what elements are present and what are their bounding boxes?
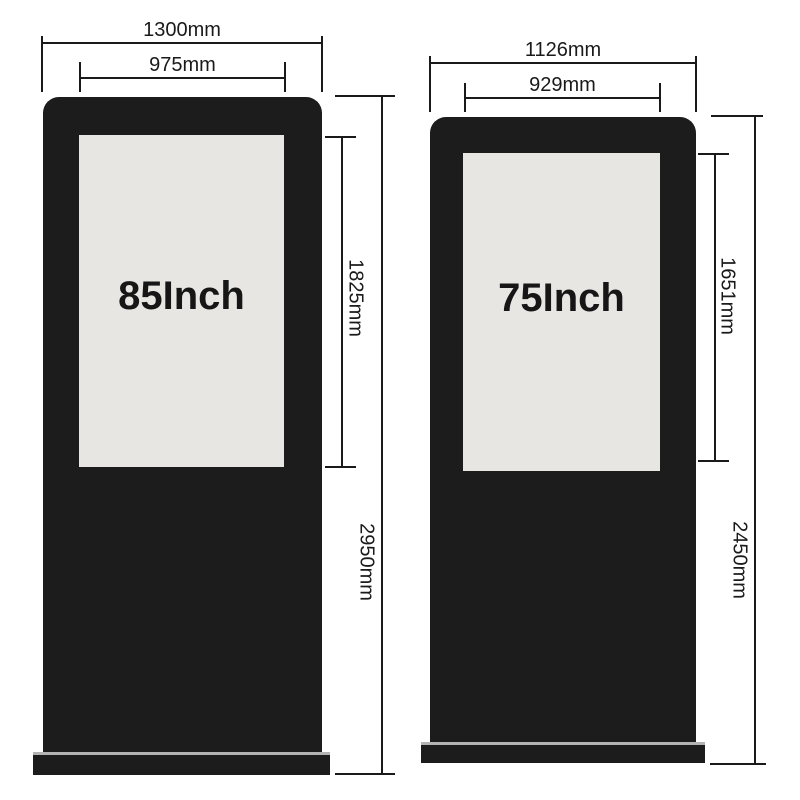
- kiosk-85-screen-height-tick-bottom: [325, 466, 356, 468]
- kiosk-75-screen-size-label: 75Inch: [498, 276, 625, 321]
- kiosk-85-base: [33, 752, 330, 775]
- kiosk-85-screen-width-label: 975mm: [80, 55, 285, 76]
- kiosk-85-total-height-tick-bottom: [335, 773, 395, 775]
- kiosk-75-screen-width-tick-right: [659, 83, 661, 112]
- kiosk-85-outer-width-tick-left: [41, 36, 43, 92]
- kiosk-75-outer-width-tick-left: [429, 56, 431, 112]
- kiosk-85-screen-size-label: 85Inch: [118, 274, 245, 319]
- kiosk-75-screen-width-dim-line: [465, 97, 660, 99]
- kiosk-85-screen-width-tick-right: [284, 62, 286, 92]
- kiosk-85-total-height-label: 2950mm: [355, 523, 378, 601]
- kiosk-75-total-height-tick-top: [711, 115, 763, 117]
- kiosk-75-screen-height-tick-top: [698, 153, 729, 155]
- kiosk-75-total-height-label: 2450mm: [728, 521, 751, 599]
- kiosk-85-screen: 85Inch: [79, 135, 284, 467]
- kiosk-75-outer-width-dim-line: [430, 62, 696, 64]
- kiosk-85-screen-height-label: 1825mm: [344, 259, 367, 337]
- kiosk-85-outer-width-dim-line: [42, 42, 322, 44]
- kiosk-75-total-height-tick-bottom: [710, 763, 766, 765]
- kiosk-75-screen-height-label: 1651mm: [716, 257, 739, 335]
- kiosk-85-total-height-tick-top: [335, 95, 395, 97]
- kiosk-75-total-height-dim-line: [754, 116, 756, 765]
- kiosk-75-base: [421, 742, 705, 763]
- kiosk-75-screen-width-label: 929mm: [465, 75, 660, 96]
- kiosk-dimension-diagram: 85Inch 1300mm 975mm 1825mm 2950mm 75Inch…: [0, 0, 800, 800]
- kiosk-85-screen-width-dim-line: [80, 77, 285, 79]
- kiosk-75-outer-width-tick-right: [695, 56, 697, 112]
- kiosk-75-screen-width-tick-left: [464, 83, 466, 112]
- kiosk-85-total-height-dim-line: [381, 96, 383, 775]
- kiosk-75-screen-height-tick-bottom: [698, 460, 729, 462]
- kiosk-75-screen: 75Inch: [463, 153, 660, 471]
- kiosk-85-outer-width-tick-right: [321, 36, 323, 92]
- kiosk-85-screen-height-tick-top: [325, 136, 356, 138]
- kiosk-85-outer-width-label: 1300mm: [42, 20, 322, 41]
- kiosk-75-outer-width-label: 1126mm: [430, 40, 696, 61]
- kiosk-85-screen-width-tick-left: [79, 62, 81, 92]
